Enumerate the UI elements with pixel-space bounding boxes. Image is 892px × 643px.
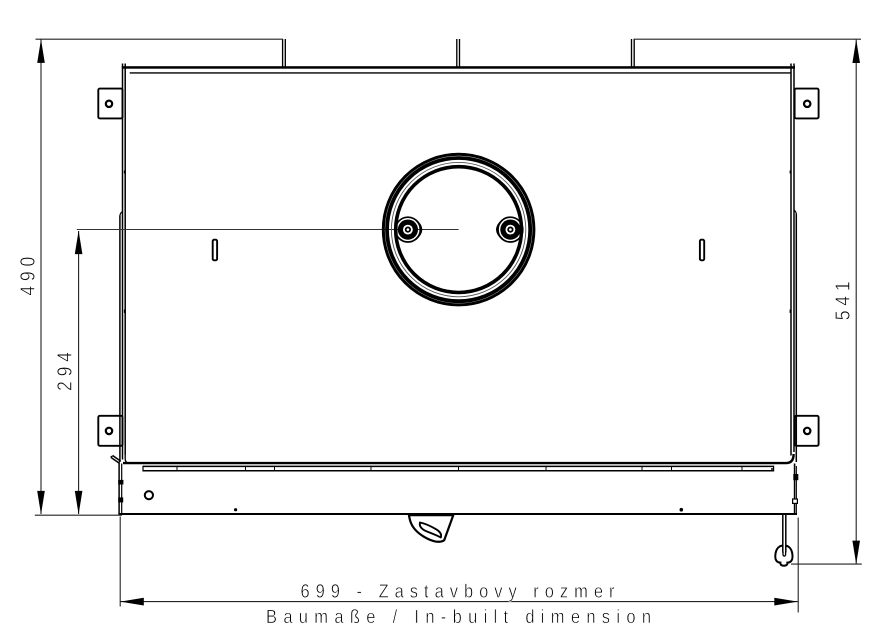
svg-text:699 - Zastavbovy rozmer: 699 - Zastavbovy rozmer <box>301 581 616 602</box>
svg-text:541: 541 <box>832 281 855 320</box>
svg-text:Baumaße / In-built dimension: Baumaße / In-built dimension <box>266 607 651 628</box>
svg-text:490: 490 <box>17 257 40 296</box>
svg-text:294: 294 <box>54 352 77 391</box>
